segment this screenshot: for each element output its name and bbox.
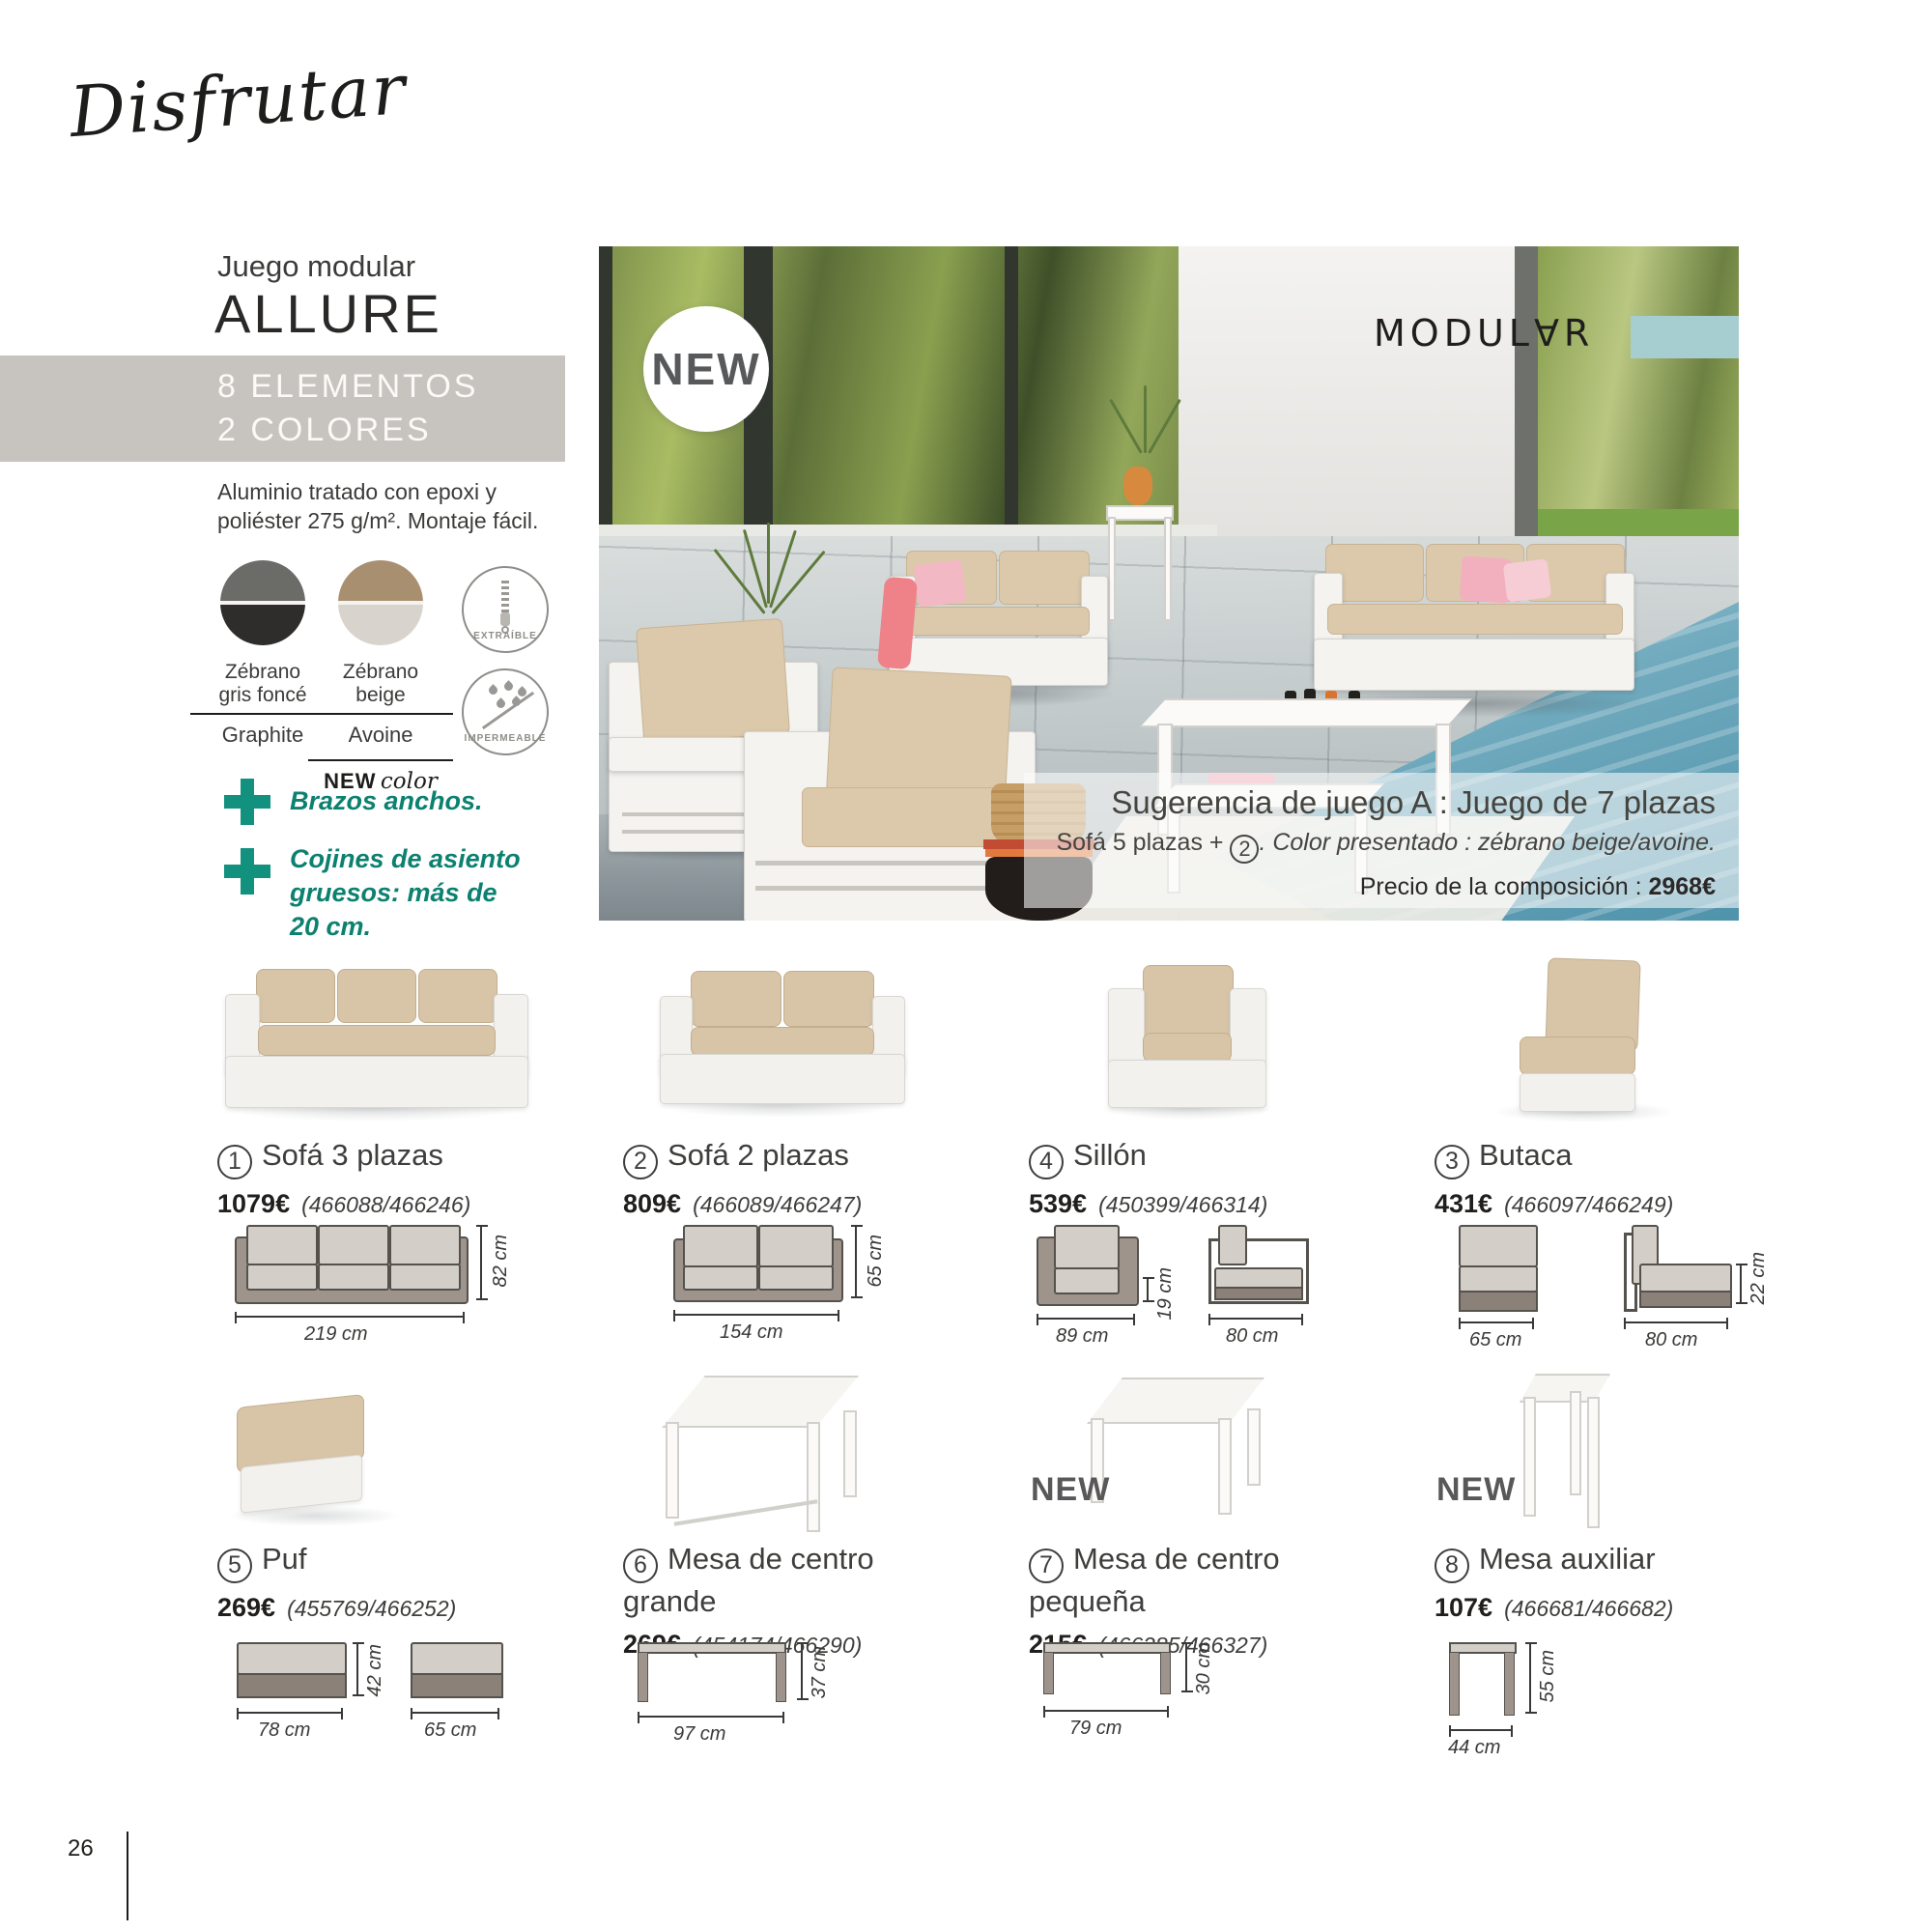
price: 1079€ [217, 1189, 290, 1218]
plus-icon [224, 848, 270, 895]
width-label: 89 cm [1056, 1325, 1108, 1348]
price: 431€ [1435, 1189, 1492, 1218]
banner-line1: 8 ELEMENTOS [217, 368, 565, 406]
product-info: 4Sillón 539€(450399/466314) [1029, 1137, 1357, 1219]
product-codes: (450399/466314) [1098, 1192, 1267, 1217]
base-shape [237, 1673, 347, 1698]
width-dimension-line [673, 1314, 839, 1316]
dimension-diagram: 37 cm 97 cm [623, 1642, 952, 1773]
plant [1140, 391, 1150, 478]
product-number-badge: 1 [217, 1145, 252, 1179]
product-photo-mesa-grande [623, 1372, 942, 1546]
product-number-badge: 7 [1029, 1548, 1064, 1583]
product-price-line: 107€(466681/466682) [1435, 1593, 1763, 1623]
product-number-badge: 8 [1435, 1548, 1469, 1583]
product-number-badge: 3 [1435, 1145, 1469, 1179]
product-title: 1Sofá 3 plazas [217, 1137, 546, 1179]
table-leg-shape [1247, 1408, 1261, 1486]
swatch2-line1: Zébrano [343, 661, 418, 683]
swatch2-label: Zébrano beige [303, 661, 458, 707]
product-name: Mesa de centro pequeña [1029, 1542, 1280, 1618]
collection-subtitle: Juego modular [217, 249, 415, 284]
height-dimension-line [480, 1225, 482, 1300]
leg-shape [1160, 1652, 1171, 1694]
divider [308, 713, 453, 715]
dimension-diagram: 65 cm 154 cm [623, 1225, 952, 1355]
product-name: Sillón [1073, 1138, 1147, 1172]
cushion-shape [1459, 1265, 1538, 1293]
width-label: 79 cm [1069, 1718, 1122, 1740]
leg-shape [1504, 1652, 1515, 1716]
width-dimension-line [237, 1712, 343, 1714]
product-info: 2Sofá 2 plazas 809€(466089/466247) [623, 1137, 952, 1219]
height-label: 42 cm [364, 1644, 386, 1696]
zipper-icon [501, 580, 509, 612]
circled-2: 2 [1230, 835, 1259, 864]
price: 269€ [217, 1593, 275, 1622]
table-leg-shape [1164, 517, 1172, 621]
leaf-shape [767, 523, 770, 604]
dimension-diagram: 42 cm 78 cm 65 cm [217, 1642, 546, 1773]
base-shape [411, 1673, 503, 1698]
zipper-pull-icon [500, 612, 510, 626]
dimension-diagram: 55 cm 44 cm [1435, 1642, 1763, 1773]
cushion-shape [256, 969, 335, 1023]
cushion-shape [1459, 1225, 1538, 1267]
table-leg-shape [1570, 1391, 1581, 1495]
new-badge: NEW [643, 306, 769, 432]
dimension-diagram: 82 cm 219 cm [217, 1225, 546, 1355]
pink-pillow [914, 559, 967, 608]
height-dimension-line [1529, 1642, 1531, 1714]
dimension-diagram: 65 cm 22 cm 80 cm [1435, 1225, 1763, 1360]
product-name: Puf [262, 1542, 307, 1576]
cushion-shape [783, 971, 874, 1027]
suggestion-pre: Sofá 5 plazas + [1056, 829, 1223, 856]
slat-line [755, 886, 1022, 891]
composition-price-line: Precio de la composición : 2968€ [1024, 873, 1716, 901]
cushion-shape [1218, 1225, 1247, 1265]
new-label: NEW [1436, 1471, 1516, 1509]
dimension-diagram: 19 cm 89 cm 80 cm [1029, 1225, 1357, 1355]
suggestion-overlay: Sugerencia de juego A : Juego de 7 plaza… [1024, 773, 1739, 908]
product-name: Sofá 3 plazas [262, 1138, 443, 1172]
page-number: 26 [68, 1835, 94, 1862]
seat-cushion-shape [1327, 604, 1623, 635]
extraible-badge: EXTRAÍBLE [462, 566, 549, 653]
swatch1-line2: gris foncé [218, 684, 306, 706]
width-label: 219 cm [304, 1323, 368, 1346]
seat-cushion-shape [258, 1025, 496, 1056]
product-photo-mesa-auxiliar [1435, 1372, 1753, 1536]
product-info: 1Sofá 3 plazas 1079€(466088/466246) [217, 1137, 546, 1219]
width-label: 97 cm [673, 1723, 725, 1746]
bullet-brazos: Brazos anchos. [290, 784, 541, 818]
product-info: 5Puf 269€(455769/466252) [217, 1541, 546, 1623]
plus-icon [224, 779, 270, 825]
width-dimension-line [638, 1716, 784, 1718]
wall-pillar [1515, 246, 1538, 546]
modular-logo: MODUL∀R [1374, 312, 1594, 355]
cushion-shape [318, 1225, 389, 1265]
height-label: 65 cm [865, 1235, 887, 1287]
dimension-diagram: 30 cm 79 cm [1029, 1642, 1357, 1773]
width-label: 44 cm [1448, 1737, 1500, 1759]
side-table [1106, 467, 1174, 621]
product-price-line: 431€(466097/466249) [1435, 1189, 1763, 1219]
slash-icon [482, 692, 534, 729]
extraible-label: EXTRAÍBLE [464, 631, 547, 641]
width-dimension-line [1043, 1710, 1169, 1712]
product-title: 6Mesa de centro grande [623, 1541, 952, 1620]
product-price-line: 269€(455769/466252) [217, 1593, 546, 1623]
suggestion-title: Sugerencia de juego A : Juego de 7 plaza… [1024, 784, 1716, 821]
lantern [1123, 467, 1152, 505]
cushion-shape [246, 1264, 318, 1291]
product-price-line: 539€(450399/466314) [1029, 1189, 1357, 1219]
seat-cushion-shape [1143, 1033, 1232, 1062]
leg-shape [1043, 1652, 1054, 1694]
cushion-shape [318, 1264, 389, 1291]
height-dimension-line [1185, 1642, 1187, 1692]
cushion-shape [411, 1642, 503, 1675]
window-frame [599, 246, 612, 536]
height-dimension-line [855, 1225, 857, 1298]
depth-dimension-line [1208, 1318, 1303, 1320]
width-label: 78 cm [258, 1719, 310, 1742]
tabletop-shape [1043, 1642, 1171, 1654]
table-leg-shape [843, 1410, 857, 1497]
white-wall [1179, 246, 1526, 536]
width-label: 154 cm [720, 1321, 783, 1344]
depth-label: 80 cm [1226, 1325, 1278, 1348]
swatch-zebrano-gris-fonce [220, 560, 305, 645]
seat-shape [1639, 1264, 1732, 1293]
impermeable-badge: IMPERMEABLE [462, 668, 549, 755]
cushion-shape [389, 1264, 461, 1291]
depth-label: 65 cm [424, 1719, 476, 1742]
product-photo-sofa3 [217, 952, 536, 1135]
slat-line [755, 861, 1022, 866]
base-shape [225, 1056, 528, 1108]
cushion-shape [237, 1642, 347, 1675]
page-number-rule [127, 1832, 128, 1920]
seat-cushion-shape [1520, 1037, 1635, 1075]
product-title: 5Puf [217, 1541, 546, 1583]
cushion-shape [246, 1225, 318, 1265]
hero-sofa-3 [1314, 544, 1633, 713]
plant [763, 532, 773, 619]
lawn [1538, 509, 1739, 538]
cushion-shape [1054, 1267, 1120, 1294]
product-name: Butaca [1479, 1138, 1573, 1172]
base-shape [1214, 1287, 1303, 1300]
cushion-shape [758, 1225, 834, 1267]
hero-photo: Sugerencia de juego A : Juego de 7 plaza… [599, 246, 1739, 921]
bullet-cojines: Cojines de asiento gruesos: más de 20 cm… [290, 842, 531, 944]
product-title: 2Sofá 2 plazas [623, 1137, 952, 1179]
table-top-shape [1140, 698, 1472, 727]
suggestion-post: . Color presentado : zébrano beige/avoin… [1259, 829, 1716, 856]
product-codes: (466681/466682) [1504, 1596, 1673, 1621]
base-shape [1459, 1291, 1538, 1312]
seat-cushion-shape [802, 787, 997, 847]
product-codes: (466088/466246) [301, 1192, 470, 1217]
cushion-shape [999, 551, 1090, 605]
cushion-shape [691, 971, 781, 1027]
width-dimension-line [1037, 1318, 1135, 1320]
elements-banner: 8 ELEMENTOS 2 COLORES [0, 355, 565, 462]
product-codes: (466097/466249) [1504, 1192, 1673, 1217]
product-title: 8Mesa auxiliar [1435, 1541, 1763, 1583]
pink-pillow [1503, 558, 1552, 602]
table-top-shape [1087, 1378, 1264, 1424]
table-leg-shape [1108, 517, 1116, 621]
leg-shape [1449, 1652, 1460, 1716]
small-height-line [1147, 1277, 1149, 1302]
product-title: 3Butaca [1435, 1137, 1763, 1179]
table-top-shape [662, 1376, 859, 1428]
depth-dimension-line [411, 1712, 499, 1714]
base-shape [1520, 1073, 1635, 1112]
stretcher-shape [674, 1499, 818, 1525]
height-dimension-line [801, 1642, 803, 1700]
product-photo-sillon [1029, 952, 1348, 1135]
base-shape [1639, 1291, 1732, 1308]
product-number-badge: 2 [623, 1145, 658, 1179]
product-title: 4Sillón [1029, 1137, 1357, 1179]
table-leg-shape [1218, 1418, 1232, 1515]
banner-line2: 2 COLORES [217, 412, 565, 449]
small-height-label: 19 cm [1154, 1267, 1177, 1320]
product-info: 3Butaca 431€(466097/466249) [1435, 1137, 1763, 1219]
raindrop-icon [502, 680, 515, 693]
tabletop-shape [638, 1642, 786, 1654]
cushion-shape [418, 969, 497, 1023]
height-label: 22 cm [1747, 1252, 1770, 1304]
height-dimension-line [1740, 1264, 1742, 1304]
product-name: Mesa de centro grande [623, 1542, 874, 1618]
product-codes: (466089/466247) [693, 1192, 862, 1217]
raindrop-icon [487, 684, 499, 696]
collection-title: ALLURE [214, 282, 442, 345]
material-description: Aluminio tratado con epoxi y poliéster 2… [217, 477, 555, 536]
width-dimension-line [235, 1316, 465, 1318]
product-number-badge: 4 [1029, 1145, 1064, 1179]
sofa-base-shape [1314, 639, 1634, 691]
seat-cushion-shape [691, 1027, 874, 1056]
product-photo-sofa2 [623, 952, 942, 1135]
section-script-title: Disfrutar [67, 48, 409, 153]
price: 107€ [1435, 1593, 1492, 1622]
table-leg-shape [1523, 1397, 1536, 1517]
height-dimension-line [356, 1642, 358, 1696]
table-leg-shape [1587, 1397, 1600, 1528]
cushion-shape [337, 969, 416, 1023]
impermeable-label: IMPERMEABLE [464, 733, 547, 744]
glass-wall-right [1538, 246, 1739, 526]
depth-label: 80 cm [1645, 1329, 1697, 1351]
product-name: Mesa auxiliar [1479, 1542, 1656, 1576]
price: 539€ [1029, 1189, 1087, 1218]
height-label: 55 cm [1537, 1650, 1559, 1702]
divider [308, 759, 453, 761]
table-leg-shape [807, 1422, 820, 1532]
teal-accent-block [1631, 316, 1739, 358]
width-dimension-line [1459, 1321, 1534, 1323]
product-number-badge: 6 [623, 1548, 658, 1583]
product-price-line: 1079€(466088/466246) [217, 1189, 546, 1219]
product-photo-puf [217, 1372, 536, 1536]
product-name: Sofá 2 plazas [668, 1138, 849, 1172]
cushion-shape [758, 1265, 834, 1291]
cushion-shape [683, 1225, 758, 1267]
leaf-shape [1144, 385, 1147, 453]
product-photo-butaca [1435, 952, 1753, 1135]
price-label: Precio de la composición : [1360, 873, 1649, 900]
cushion-shape [1143, 965, 1234, 1040]
depth-dimension-line [1624, 1321, 1728, 1323]
base-shape [1108, 1060, 1266, 1108]
cushion-shape [683, 1265, 758, 1291]
height-label: 37 cm [809, 1646, 831, 1698]
width-label: 65 cm [1469, 1329, 1521, 1351]
cushion-shape [389, 1225, 461, 1265]
product-price-line: 809€(466089/466247) [623, 1189, 952, 1219]
raindrop-icon [495, 697, 507, 710]
swatch2-line2: beige [355, 684, 405, 706]
base-shape [660, 1054, 905, 1104]
cushion-shape [1054, 1225, 1120, 1269]
leg-shape [776, 1652, 786, 1702]
height-label: 30 cm [1193, 1642, 1215, 1694]
price: 809€ [623, 1189, 681, 1218]
product-info: 8Mesa auxiliar 107€(466681/466682) [1435, 1541, 1763, 1623]
new-label: NEW [1031, 1471, 1110, 1509]
product-title: 7Mesa de centro pequeña [1029, 1541, 1357, 1620]
swatch1-line1: Zébrano [225, 661, 300, 683]
arm-shape [1230, 988, 1266, 1065]
product-codes: (455769/466252) [287, 1596, 456, 1621]
swatch-zebrano-beige [338, 560, 423, 645]
arm-shape [1108, 988, 1145, 1065]
width-dimension-line [1449, 1729, 1513, 1731]
price-value: 2968€ [1648, 873, 1716, 900]
suggestion-detail: Sofá 5 plazas + 2. Color presentado : zé… [1024, 829, 1716, 864]
height-label: 82 cm [490, 1235, 512, 1287]
table-leg-shape [666, 1422, 679, 1519]
leg-shape [638, 1652, 648, 1702]
catalog-page: Disfrutar Juego modular ALLURE 8 ELEMENT… [0, 0, 1932, 1932]
seat-cushion-shape [906, 607, 1090, 636]
window-frame [1005, 246, 1018, 536]
product-number-badge: 5 [217, 1548, 252, 1583]
swatch2-alt-label: Avoine [303, 723, 458, 748]
